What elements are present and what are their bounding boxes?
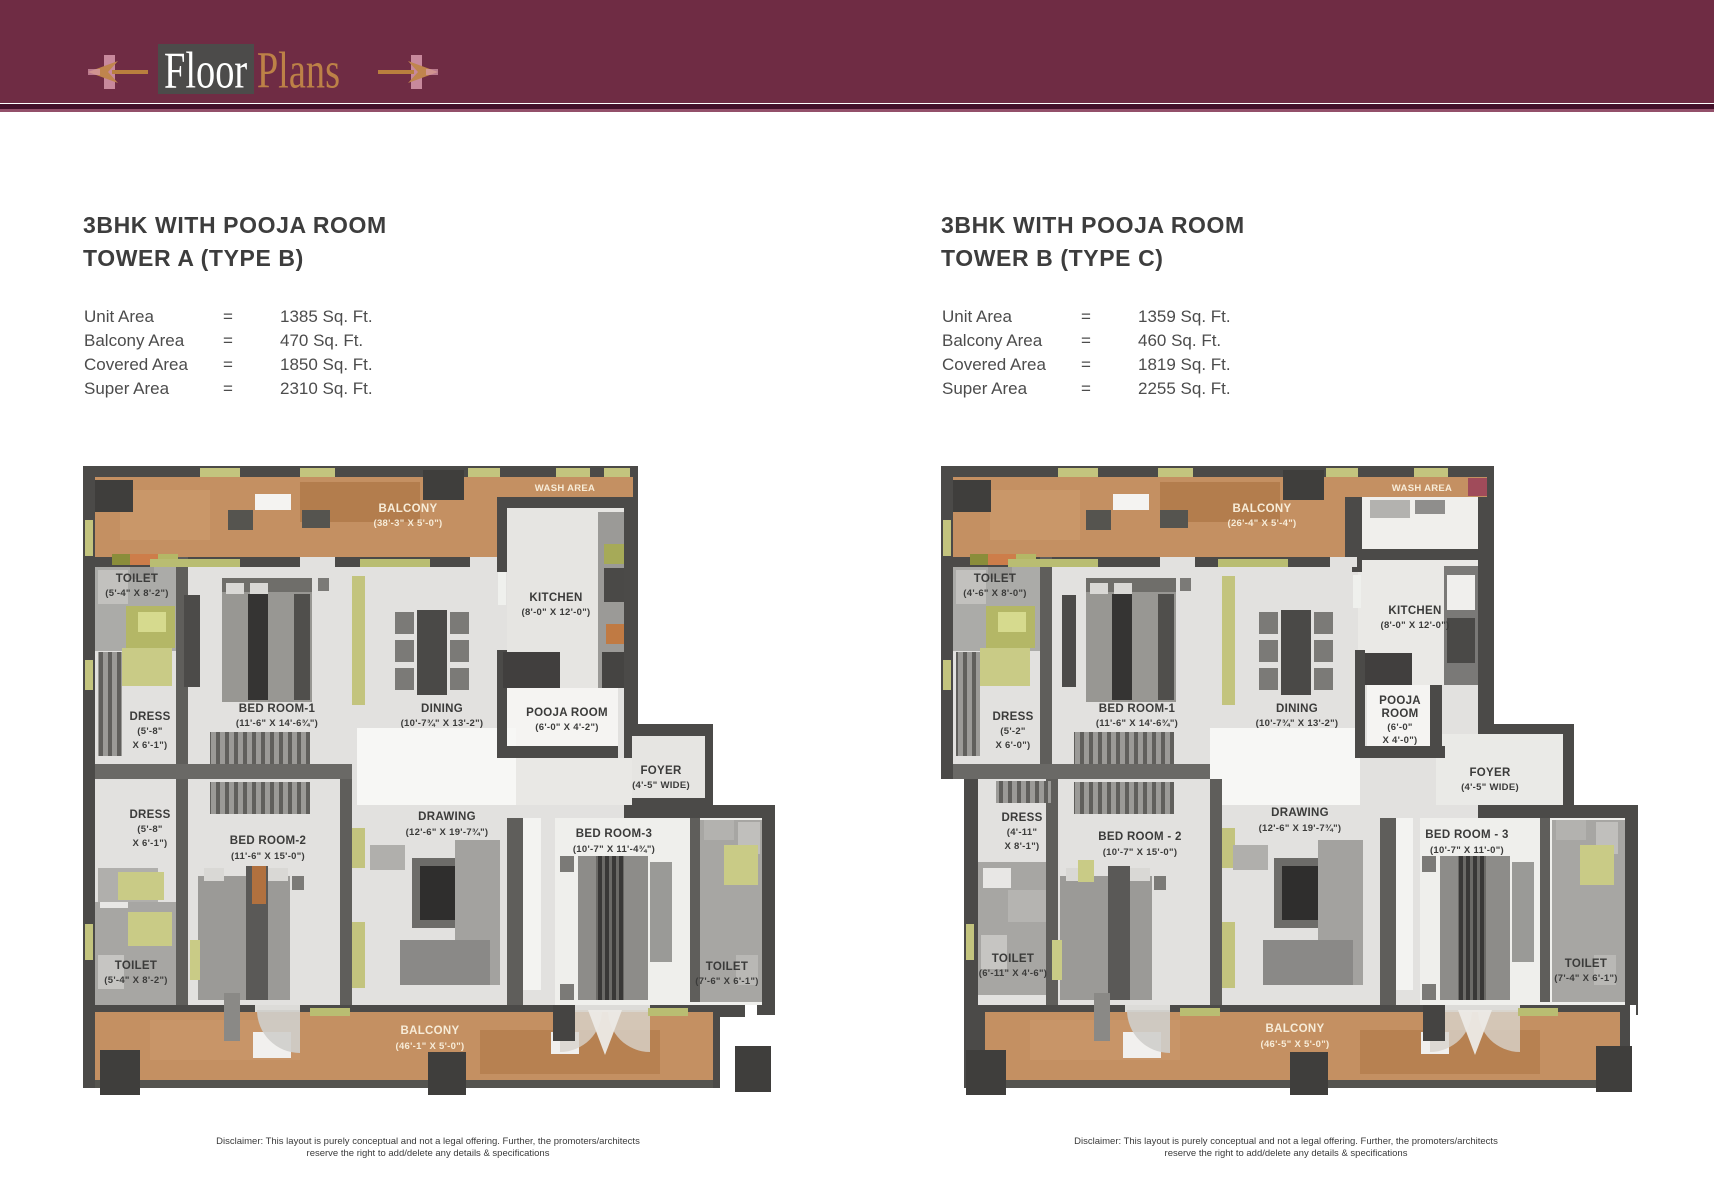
svg-text:(11'-6" X 14'-6¾"): (11'-6" X 14'-6¾") — [236, 718, 318, 729]
svg-text:WASH AREA: WASH AREA — [535, 483, 595, 494]
svg-text:KITCHEN: KITCHEN — [529, 592, 582, 604]
svg-text:X 8'-1"): X 8'-1") — [1004, 841, 1039, 852]
svg-text:DRESS: DRESS — [1001, 812, 1042, 824]
svg-text:BED ROOM-1: BED ROOM-1 — [1099, 703, 1176, 715]
svg-text:(6'-0": (6'-0" — [1387, 722, 1412, 733]
svg-text:(12'-6" X 19'-7¾"): (12'-6" X 19'-7¾") — [406, 827, 489, 838]
svg-text:TOILET: TOILET — [974, 573, 1016, 585]
svg-text:(26'-4" X 5'-4"): (26'-4" X 5'-4") — [1227, 518, 1296, 529]
svg-text:BALCONY: BALCONY — [1233, 503, 1292, 515]
svg-text:DRESS: DRESS — [992, 711, 1033, 723]
svg-text:POOJA ROOM: POOJA ROOM — [526, 707, 608, 719]
svg-text:BED ROOM - 3: BED ROOM - 3 — [1425, 829, 1508, 841]
svg-text:(10'-7¾" X 13'-2"): (10'-7¾" X 13'-2") — [401, 718, 484, 729]
svg-text:X 6'-1"): X 6'-1") — [132, 838, 167, 849]
svg-text:(6'-0" X 4'-2"): (6'-0" X 4'-2") — [535, 722, 598, 733]
svg-text:(8'-0" X 12'-0"): (8'-0" X 12'-0") — [521, 607, 590, 618]
svg-text:BALCONY: BALCONY — [379, 503, 438, 515]
svg-text:BED ROOM-2: BED ROOM-2 — [230, 835, 306, 847]
svg-text:ROOM: ROOM — [1382, 708, 1419, 720]
svg-text:(6'-11" X 4'-6"): (6'-11" X 4'-6") — [979, 968, 1048, 979]
svg-text:TOILET: TOILET — [116, 573, 158, 585]
svg-text:(5'-4" X 8'-2"): (5'-4" X 8'-2") — [104, 975, 167, 986]
svg-text:(4'-5" WIDE): (4'-5" WIDE) — [1461, 782, 1519, 793]
svg-text:POOJA: POOJA — [1379, 695, 1421, 707]
svg-text:TOILET: TOILET — [1565, 958, 1607, 970]
svg-text:FOYER: FOYER — [1469, 767, 1511, 779]
svg-text:(4'-11": (4'-11" — [1007, 827, 1038, 838]
svg-text:X 4'-0"): X 4'-0") — [1382, 735, 1417, 746]
svg-text:DRESS: DRESS — [129, 711, 170, 723]
svg-text:(5'-4" X 8'-2"): (5'-4" X 8'-2") — [105, 588, 168, 599]
svg-text:DRAWING: DRAWING — [418, 811, 476, 823]
svg-text:(10'-7" X 11'-0"): (10'-7" X 11'-0") — [1430, 845, 1504, 856]
svg-text:DINING: DINING — [421, 703, 463, 715]
svg-text:(12'-6" X 19'-7¾"): (12'-6" X 19'-7¾") — [1259, 823, 1342, 834]
svg-text:(38'-3" X 5'-0"): (38'-3" X 5'-0") — [373, 518, 442, 529]
svg-text:(5'-8": (5'-8" — [137, 726, 162, 737]
svg-text:(7'-6" X 6'-1"): (7'-6" X 6'-1") — [695, 976, 758, 987]
svg-text:BALCONY: BALCONY — [1266, 1023, 1325, 1035]
svg-text:BED ROOM-3: BED ROOM-3 — [576, 828, 652, 840]
svg-text:(7'-4" X 6'-1"): (7'-4" X 6'-1") — [1554, 973, 1617, 984]
svg-text:TOILET: TOILET — [115, 960, 157, 972]
svg-text:(5'-8": (5'-8" — [137, 824, 162, 835]
svg-text:(4'-5" WIDE): (4'-5" WIDE) — [632, 780, 690, 791]
svg-text:(4'-6" X 8'-0"): (4'-6" X 8'-0") — [963, 588, 1026, 599]
svg-text:TOILET: TOILET — [706, 961, 748, 973]
svg-text:(8'-0" X 12'-0"): (8'-0" X 12'-0") — [1380, 620, 1449, 631]
svg-text:X 6'-1"): X 6'-1") — [132, 740, 167, 751]
svg-text:BALCONY: BALCONY — [401, 1025, 460, 1037]
svg-text:(10'-7" X 15'-0"): (10'-7" X 15'-0") — [1103, 847, 1178, 858]
svg-text:KITCHEN: KITCHEN — [1388, 605, 1441, 617]
svg-text:(46'-5" X 5'-0"): (46'-5" X 5'-0") — [1260, 1039, 1329, 1050]
svg-text:(11'-6" X 14'-6¾"): (11'-6" X 14'-6¾") — [1096, 718, 1178, 729]
svg-text:(46'-1" X 5'-0"): (46'-1" X 5'-0") — [395, 1041, 464, 1052]
svg-text:TOILET: TOILET — [992, 953, 1034, 965]
svg-text:BED ROOM - 2: BED ROOM - 2 — [1098, 831, 1181, 843]
svg-text:(10'-7¾" X 13'-2"): (10'-7¾" X 13'-2") — [1256, 718, 1339, 729]
svg-text:X 6'-0"): X 6'-0") — [995, 740, 1030, 751]
svg-text:BED ROOM-1: BED ROOM-1 — [239, 703, 316, 715]
svg-text:(11'-6" X 15'-0"): (11'-6" X 15'-0") — [231, 851, 305, 862]
svg-text:DRESS: DRESS — [129, 809, 170, 821]
svg-text:(5'-2": (5'-2" — [1000, 726, 1025, 737]
svg-text:(10'-7" X 11'-4¾"): (10'-7" X 11'-4¾") — [573, 844, 655, 855]
svg-text:DINING: DINING — [1276, 703, 1318, 715]
svg-text:DRAWING: DRAWING — [1271, 807, 1329, 819]
svg-text:FOYER: FOYER — [640, 765, 682, 777]
svg-text:WASH AREA: WASH AREA — [1392, 483, 1452, 494]
